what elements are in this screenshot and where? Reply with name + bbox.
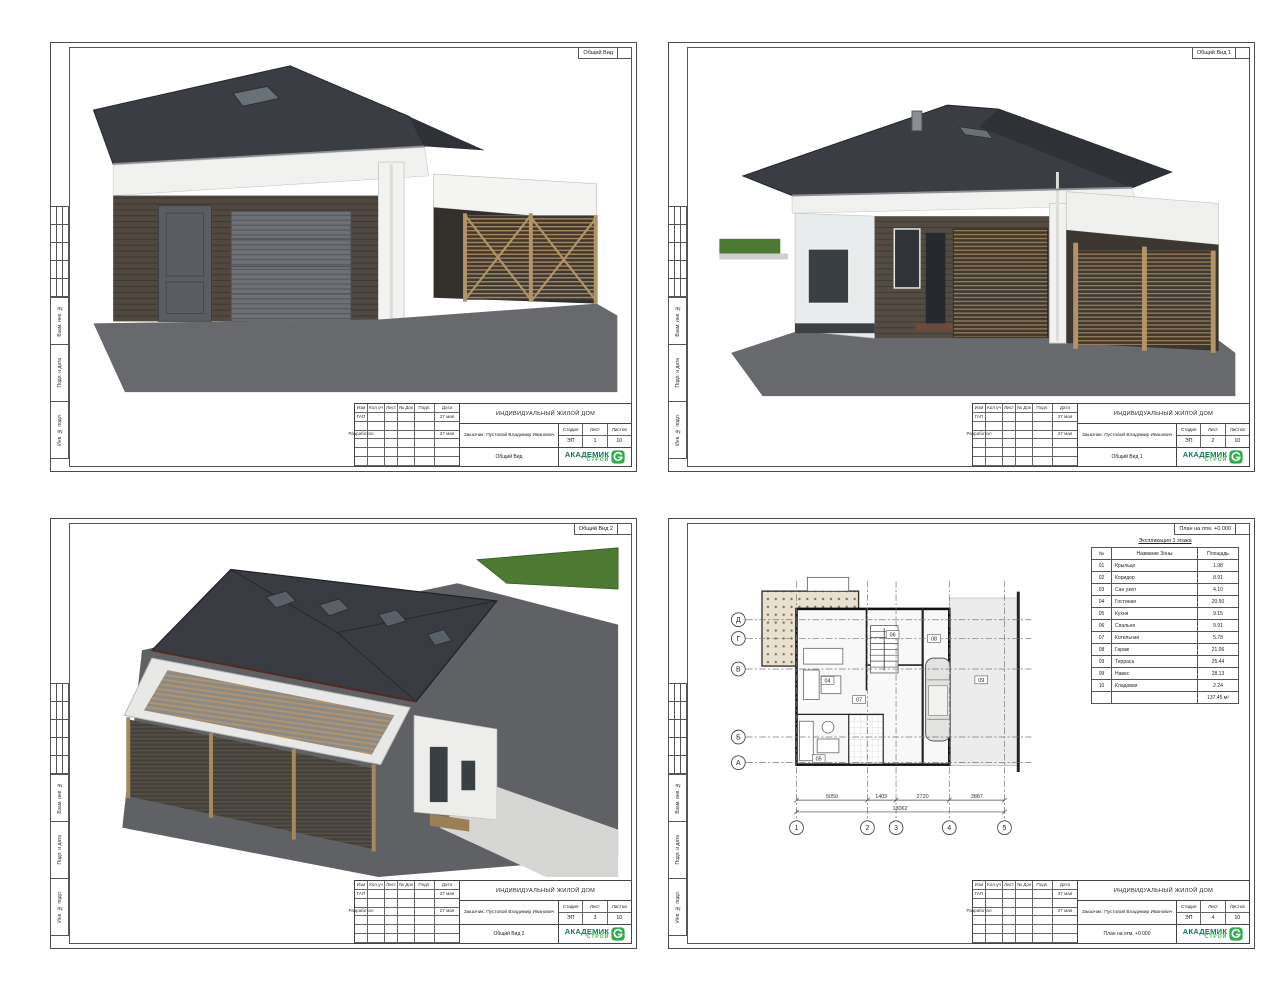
plinth	[795, 323, 875, 333]
svg-text:Д: Д	[736, 617, 741, 624]
total-sheets: 10	[608, 436, 631, 448]
svg-text:13062: 13062	[892, 806, 907, 812]
client-name: Заказчик: Пустовой Владимир Иванович	[460, 424, 559, 447]
svg-text:04: 04	[825, 678, 831, 684]
logo-icon	[1229, 927, 1243, 941]
svg-text:07: 07	[856, 698, 862, 704]
plan-drawing: 1 2 3 4 5 Д Г В Б А	[731, 577, 1031, 834]
client-name: Заказчик: Пустовой Владимир Иванович	[460, 901, 559, 924]
axis-bubbles-left: Д Г В Б А	[731, 613, 745, 770]
sheet-name: Общий Вид	[460, 448, 559, 466]
carport-post	[1073, 243, 1078, 349]
side-stamp-column: Взам. инв. № Подп. и дата Инв. № подл.	[668, 683, 687, 936]
stamp-vzam-inv: Взам. инв. №	[50, 774, 69, 822]
total-sheets: 10	[1226, 913, 1249, 925]
hedge	[477, 548, 618, 589]
side-stamp-column: Взам. инв. № Подп. и дата Инв. № подл.	[50, 206, 69, 459]
sheet-3: Взам. инв. № Подп. и дата Инв. № подл. О…	[50, 518, 637, 949]
expl-row: 03Сан узел4.10	[1092, 584, 1239, 596]
svg-text:В: В	[736, 666, 741, 673]
sheet-number: 4	[1201, 913, 1225, 925]
render-view-1	[78, 56, 623, 400]
car	[926, 658, 951, 741]
explication-total: 137.45 м²	[1198, 692, 1239, 704]
project-title: ИНДИВИДУАЛЬНЫЙ ЖИЛОЙ ДОМ	[460, 881, 631, 901]
svg-text:3887: 3887	[971, 794, 983, 800]
svg-text:1: 1	[795, 825, 799, 832]
explication-title: Экспликация 1 этажа	[1091, 538, 1239, 544]
stage-table: СтадияЛистЛистов ЭП310	[559, 901, 631, 924]
logo-line2: СТРОЙ	[587, 458, 609, 463]
porch-step	[916, 323, 959, 331]
total-sheets: 10	[608, 913, 631, 925]
logo-icon	[1229, 450, 1243, 464]
sheet-frame: План на отм. +0.000	[687, 523, 1250, 944]
side-stamp-column: Взам. инв. № Подп. и дата Инв. № подл.	[50, 683, 69, 936]
stamp-podp-data: Подп. и дата	[668, 822, 687, 879]
approval-grid	[668, 683, 687, 774]
role-gap: ГАП	[355, 413, 368, 422]
expl-total-row: 137.45 м²	[1092, 692, 1239, 704]
svg-text:А: А	[736, 760, 741, 767]
stage-value: ЭП	[559, 436, 583, 448]
revision-grid: ИзмКол.учЛист№ ДокПодп.Дата ГАП27 мая Ра…	[355, 404, 460, 466]
render-view-3	[78, 532, 623, 877]
expl-row: 09Терраса25.44	[1092, 656, 1239, 668]
date-2: 27 мая	[435, 431, 459, 440]
expl-row: 10Кладовая2.24	[1092, 680, 1239, 692]
svg-text:5: 5	[1003, 825, 1007, 832]
sheet-name: Общий Вид 1	[1078, 448, 1177, 466]
svg-text:08: 08	[931, 636, 937, 642]
svg-text:05: 05	[816, 757, 822, 763]
expl-row: 06Спальня9.91	[1092, 620, 1239, 632]
expl-row: 04Гостиная20.50	[1092, 596, 1239, 608]
stamp-inv-podl: Инв. № подл.	[50, 402, 69, 459]
client-name: Заказчик: Пустовой Владимир Иванович	[1078, 424, 1177, 447]
stamp-podp-data: Подп. и дата	[50, 822, 69, 879]
approval-grid	[50, 206, 69, 297]
revision-grid: ИзмКол.учЛист№ ДокПодп.Дата ГАП27 мая Ра…	[973, 881, 1078, 943]
roof-canopy	[807, 577, 848, 591]
door	[430, 747, 448, 802]
stage-table: СтадияЛистЛистов ЭП410	[1177, 901, 1249, 924]
stamp-vzam-inv: Взам. инв. №	[50, 297, 69, 345]
garage-door-slats	[953, 229, 1047, 337]
window	[808, 249, 849, 304]
svg-text:2720: 2720	[917, 794, 929, 800]
side-stamp-column: Взам. инв. № Подп. и дата Инв. № подл.	[668, 206, 687, 459]
company-logo: АКАДЕМИКСТРОЙ	[559, 448, 631, 466]
house-aerial-view	[122, 548, 618, 877]
porch-window	[894, 229, 920, 288]
sheet-number: 2	[1201, 436, 1225, 448]
stamp-vzam-inv: Взам. инв. №	[668, 774, 687, 822]
curb	[719, 254, 788, 260]
approval-grid	[50, 683, 69, 774]
project-title: ИНДИВИДУАЛЬНЫЙ ЖИЛОЙ ДОМ	[1078, 881, 1249, 901]
project-title: ИНДИВИДУАЛЬНЫЙ ЖИЛОЙ ДОМ	[1078, 404, 1249, 424]
white-wall	[414, 715, 497, 819]
stage-value: ЭП	[1177, 436, 1201, 448]
axis-bubbles-bottom: 1 2 3 4 5	[790, 821, 1012, 835]
drawing-board: Взам. инв. № Подп. и дата Инв. № подл. О…	[0, 0, 1280, 989]
sheet-1: Взам. инв. № Подп. и дата Инв. № подл. О…	[50, 42, 637, 472]
logo-icon	[611, 927, 625, 941]
company-logo: АКАДЕМИКСТРОЙ	[1177, 925, 1249, 943]
stage-value: ЭП	[559, 913, 583, 925]
approval-grid	[668, 206, 687, 297]
col-podp: Подп.	[415, 404, 435, 413]
logo-icon	[611, 450, 625, 464]
project-title: ИНДИВИДУАЛЬНЫЙ ЖИЛОЙ ДОМ	[460, 404, 631, 424]
sheet-frame: Общий Вид 1	[687, 47, 1250, 467]
sheet-number: 3	[583, 913, 607, 925]
title-block: ИзмКол.учЛист№ ДокПодп.Дата ГАП27 мая Ра…	[354, 403, 632, 467]
role-developer: Разработал	[355, 431, 368, 440]
col-list: Лист	[385, 404, 398, 413]
bathroom	[850, 715, 883, 763]
svg-text:06: 06	[890, 632, 896, 638]
svg-text:Б: Б	[736, 734, 741, 741]
sheet-name: Общий Вид 2	[460, 925, 559, 943]
dimension-values: 5050 1405 2720 3887 13062	[826, 794, 983, 812]
title-block: ИзмКол.учЛист№ ДокПодп.Дата ГАП27 мая Ра…	[972, 403, 1250, 467]
explication-table: Экспликация 1 этажа №Название ЗоныПлощад…	[1091, 538, 1239, 704]
stamp-vzam-inv: Взам. инв. №	[668, 297, 687, 345]
expl-row: 08Гараж21.06	[1092, 644, 1239, 656]
client-name: Заказчик: Пустовой Владимир Иванович	[1078, 901, 1177, 924]
company-logo: АКАДЕМИКСТРОЙ	[1177, 448, 1249, 466]
sheet-2: Взам. инв. № Подп. и дата Инв. № подл. О…	[668, 42, 1255, 472]
window	[461, 761, 475, 791]
expl-row: 07Котельная5.78	[1092, 632, 1239, 644]
house-closeup	[93, 66, 617, 392]
col-izm: Изм	[355, 404, 368, 413]
svg-text:09: 09	[978, 678, 984, 684]
total-sheets: 10	[1226, 436, 1249, 448]
chimney	[912, 111, 922, 131]
svg-text:3: 3	[894, 825, 898, 832]
hedge	[719, 239, 780, 254]
svg-text:2: 2	[866, 825, 870, 832]
stage-table: СтадияЛистЛистов ЭП110	[559, 424, 631, 447]
sheet-4: Взам. инв. № Подп. и дата Инв. № подл. П…	[668, 518, 1255, 949]
sheet-name: План на отм. +0.000	[1078, 925, 1177, 943]
svg-text:4: 4	[947, 825, 951, 832]
porch-door	[926, 233, 946, 326]
expl-row: 01Крыльцо1.98	[1092, 560, 1239, 572]
title-block: ИзмКол.учЛист№ ДокПодп.Дата ГАП27 мая Ра…	[354, 880, 632, 944]
house-front-view	[719, 105, 1235, 396]
expl-row: 09Навес28.13	[1092, 668, 1239, 680]
stamp-podp-data: Подп. и дата	[668, 345, 687, 402]
col-koluch: Кол.уч	[368, 404, 385, 413]
col-dok: № Док	[398, 404, 415, 413]
stage-value: ЭП	[1177, 913, 1201, 925]
date-1: 27 мая	[435, 413, 459, 422]
title-block: ИзмКол.учЛист№ ДокПодп.Дата ГАП27 мая Ра…	[972, 880, 1250, 944]
stamp-inv-podl: Инв. № подл.	[668, 402, 687, 459]
stamp-podp-data: Подп. и дата	[50, 345, 69, 402]
expl-row: 05Кухня9.15	[1092, 608, 1239, 620]
stamp-inv-podl: Инв. № подл.	[50, 879, 69, 936]
stamp-inv-podl: Инв. № подл.	[668, 879, 687, 936]
col-data: Дата	[435, 404, 459, 413]
sheet-number: 1	[583, 436, 607, 448]
company-logo: АКАДЕМИКСТРОЙ	[559, 925, 631, 943]
svg-text:Г: Г	[736, 636, 740, 643]
svg-text:1405: 1405	[875, 794, 887, 800]
svg-text:5050: 5050	[826, 794, 838, 800]
expl-row: 02Коридор8.91	[1092, 572, 1239, 584]
stage-table: СтадияЛистЛистов ЭП210	[1177, 424, 1249, 447]
sheet-frame: Общий Вид	[69, 47, 632, 467]
revision-grid: ИзмКол.учЛист№ ДокПодп.Дата ГАП27 мая Ра…	[973, 404, 1078, 466]
sheet-frame: Общий Вид 2	[69, 523, 632, 944]
render-view-2	[696, 56, 1241, 400]
revision-grid: ИзмКол.учЛист№ ДокПодп.Дата ГАП27 мая Ра…	[355, 881, 460, 943]
